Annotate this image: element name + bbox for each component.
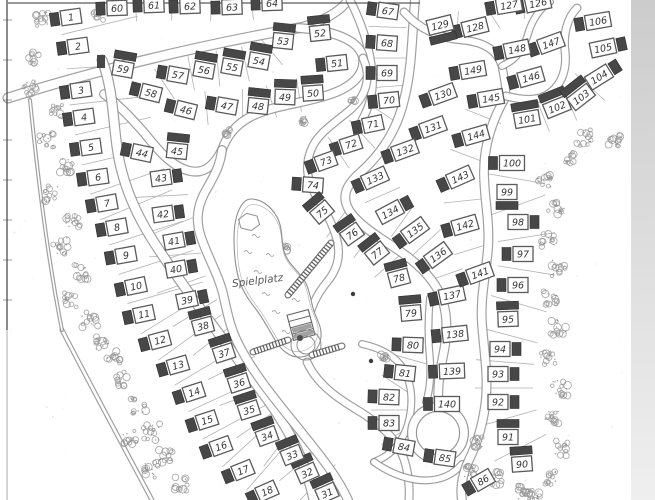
tree-dot	[89, 319, 90, 320]
parcel-boundary-line	[369, 26, 407, 27]
tree-dot	[102, 345, 103, 346]
tree-dot	[305, 116, 306, 117]
lot-marker: 8	[95, 218, 128, 238]
building-footprint	[423, 449, 434, 463]
building-footprint	[366, 35, 376, 49]
lot-number: 62	[184, 1, 196, 12]
building-footprint	[392, 338, 401, 351]
building-footprint	[367, 95, 377, 109]
lot-marker: 38	[188, 306, 216, 336]
lot-number: 91	[502, 433, 514, 444]
lot-number: 90	[516, 459, 529, 471]
lot-marker: 64	[251, 0, 283, 11]
tree-dot	[387, 355, 388, 356]
lot-marker: 59	[111, 50, 137, 78]
paper-speckle	[611, 425, 613, 427]
tree-dot	[548, 411, 549, 412]
building-footprint	[497, 420, 519, 428]
building-footprint	[510, 446, 533, 456]
tree-scribble	[546, 184, 550, 188]
tree-dot	[65, 253, 66, 254]
lot-marker: 105	[589, 36, 627, 58]
tree-dot	[468, 475, 469, 476]
tree-dot	[107, 357, 108, 358]
building-footprint	[574, 17, 585, 31]
tree-dot	[546, 417, 547, 418]
lot-number: 98	[512, 218, 524, 229]
paper-speckle	[619, 342, 620, 343]
paper-speckle	[584, 152, 586, 154]
tree-scribble	[565, 440, 570, 445]
tree-dot	[153, 474, 154, 475]
tree-dot	[185, 479, 186, 480]
lot-marker: 148	[492, 39, 530, 61]
subdivision-map: 1234567891011121314151617183132333435363…	[0, 0, 655, 500]
tree-dot	[537, 495, 538, 496]
tree-scribble	[79, 324, 86, 331]
tree-dot	[563, 208, 564, 209]
paper-speckle	[101, 142, 102, 143]
building-footprint	[129, 82, 141, 97]
lot-number: 43	[154, 173, 168, 186]
building-footprint	[211, 1, 220, 14]
tree-dot	[50, 132, 51, 133]
lot-marker: 45	[165, 132, 189, 159]
tree-dot	[49, 200, 50, 201]
tree-scribble	[47, 186, 53, 192]
tree-dot	[83, 267, 84, 268]
paper-speckle	[94, 257, 96, 259]
tree-scribble	[548, 317, 555, 324]
lot-marker: 60	[96, 0, 128, 16]
building-footprint	[496, 301, 518, 310]
tree-dot	[521, 487, 522, 488]
paper-speckle	[13, 231, 15, 233]
lot-marker: 50	[301, 75, 325, 101]
tree-scribble	[52, 104, 55, 107]
tree-dot	[548, 293, 549, 294]
tree-dot	[93, 325, 94, 326]
lot-marker: 96	[497, 278, 528, 293]
paper-speckle	[52, 416, 54, 418]
tree-dot	[155, 439, 156, 440]
tree-dot	[60, 108, 61, 109]
building-footprint	[497, 279, 506, 292]
tree-scribble	[33, 12, 39, 18]
lot-marker: 11	[122, 305, 155, 326]
lot-marker: 7	[85, 194, 118, 214]
paper-speckle	[366, 300, 367, 301]
lot-marker: 106	[574, 11, 612, 32]
tree-dot	[34, 81, 35, 82]
tree-scribble	[172, 474, 179, 481]
lot-number: 140	[438, 400, 456, 411]
lot-marker: 83	[368, 416, 399, 431]
tree-scribble	[78, 264, 84, 270]
paper-speckle	[263, 176, 264, 177]
building-footprint	[49, 12, 60, 26]
tree-dot	[555, 472, 556, 473]
tree-dot	[56, 106, 57, 107]
building-footprint	[424, 398, 433, 411]
paper-speckle	[544, 163, 546, 165]
lot-number: 93	[492, 370, 504, 381]
lot-number: 138	[446, 329, 465, 342]
tree-dot	[464, 476, 465, 477]
tree-scribble	[56, 169, 63, 176]
lot-number: 50	[307, 88, 320, 100]
tree-scribble	[36, 24, 39, 27]
junction-block	[97, 55, 105, 68]
tree-scribble	[552, 469, 558, 475]
building-footprint	[104, 251, 115, 265]
building-footprint	[399, 295, 422, 305]
lot-marker: 104	[584, 58, 622, 90]
parcel-boundary-line	[444, 199, 482, 203]
lot-marker: 14	[172, 382, 206, 406]
lot-marker: 147	[526, 32, 565, 58]
tree-dot	[107, 343, 108, 344]
lot-number: 48	[251, 101, 264, 113]
building-footprint	[167, 132, 190, 142]
tree-dot	[553, 381, 554, 382]
lot-number: 51	[331, 58, 344, 70]
tree-dot	[143, 429, 144, 430]
lot-number: 53	[276, 36, 289, 48]
tree-dot	[565, 331, 566, 332]
paper-speckle	[140, 109, 142, 111]
paper-speckle	[235, 185, 236, 186]
building-footprint	[59, 85, 70, 99]
tree-dot	[585, 130, 586, 131]
tree-dot	[57, 253, 58, 254]
paper-speckle	[584, 46, 586, 48]
paper-speckle	[366, 380, 368, 382]
lot-number: 67	[381, 6, 395, 19]
lot-marker: 6	[76, 168, 109, 187]
lot-marker: 56	[192, 51, 218, 79]
lot-marker: 136	[415, 242, 453, 275]
building-footprint	[172, 169, 183, 183]
paper-speckle	[160, 190, 162, 192]
tree-dot	[138, 410, 139, 411]
lot-marker: 52	[307, 14, 331, 41]
tree-scribble	[144, 422, 151, 429]
building-footprint	[85, 199, 96, 213]
lot-marker: 74	[292, 176, 324, 193]
lot-marker: 80	[392, 337, 424, 353]
lot-marker: 62	[169, 0, 201, 14]
tree-dot	[385, 358, 386, 359]
tree-dot	[46, 22, 47, 23]
lot-marker: 12	[138, 330, 172, 353]
paper-speckle	[620, 96, 621, 97]
tree-dot	[158, 427, 159, 428]
tree-dot	[50, 137, 51, 138]
building-footprint	[138, 337, 150, 352]
tree-dot	[550, 186, 551, 187]
paper-speckle	[63, 453, 65, 455]
tree-scribble	[101, 18, 106, 23]
tree-dot	[158, 439, 159, 440]
tree-dot	[609, 139, 610, 140]
tree-dot	[466, 466, 467, 467]
tree-dot	[68, 226, 69, 227]
lot-marker: 41	[163, 230, 196, 250]
tree-dot	[41, 142, 42, 143]
building-footprint	[114, 282, 126, 297]
tree-dot	[85, 267, 86, 268]
tree-dot	[32, 94, 33, 95]
tree-dot	[554, 381, 555, 382]
lot-marker: 9	[104, 246, 137, 266]
building-footprint	[122, 310, 134, 325]
lot-marker: 143	[435, 165, 474, 193]
lot-marker: 4	[62, 108, 95, 127]
building-footprint	[496, 202, 518, 210]
ring-structure-dot	[297, 335, 303, 341]
lot-marker: 146	[506, 66, 545, 90]
lot-number: 139	[443, 366, 462, 378]
paper-speckle	[215, 191, 217, 193]
tree-dot	[584, 132, 585, 133]
paper-speckle	[261, 181, 262, 182]
building-footprint	[205, 96, 216, 110]
tree-dot	[124, 441, 125, 442]
tree-dot	[121, 378, 122, 379]
tree-dot	[620, 142, 621, 143]
lot-marker: 47	[205, 95, 238, 115]
parcel-boundary-line	[498, 266, 555, 275]
building-footprint	[292, 177, 302, 191]
tree-dot	[532, 498, 533, 499]
tree-dot	[557, 411, 558, 412]
tree-scribble	[74, 305, 78, 309]
lot-marker: 139	[428, 363, 465, 379]
lot-number: 99	[501, 188, 513, 199]
lot-number: 94	[494, 345, 506, 356]
tree-dot	[79, 223, 80, 224]
ink-blot	[351, 292, 355, 296]
paper-speckle	[576, 276, 578, 278]
paper-speckle	[369, 351, 371, 353]
tree-scribble	[69, 302, 74, 307]
tree-dot	[104, 337, 105, 338]
tree-scribble	[554, 411, 557, 414]
tree-dot	[152, 425, 153, 426]
building-footprint	[156, 65, 167, 79]
tree-dot	[552, 260, 553, 261]
tree-scribble	[574, 140, 580, 146]
tree-dot	[123, 386, 124, 387]
building-footprint	[301, 75, 324, 85]
tree-dot	[557, 380, 558, 381]
lot-number: 81	[398, 368, 411, 380]
tree-dot	[543, 179, 544, 180]
lot-number: 100	[503, 159, 521, 170]
tree-dot	[560, 447, 561, 448]
paper-speckle	[525, 479, 527, 481]
lot-marker: 48	[246, 87, 270, 114]
building-footprint	[76, 172, 87, 186]
tree-dot	[40, 138, 41, 139]
tree-dot	[540, 357, 541, 358]
paper-speckle	[272, 71, 274, 73]
tree-dot	[171, 460, 172, 461]
tree-dot	[74, 214, 75, 215]
lot-number: 84	[397, 442, 411, 455]
paper-speckle	[521, 340, 523, 342]
lot-marker: 1	[49, 8, 82, 27]
paper-speckle	[250, 421, 251, 422]
tree-dot	[545, 483, 546, 484]
paper-speckle	[355, 60, 357, 62]
lot-number: 59	[116, 64, 130, 77]
tree-dot	[91, 323, 92, 324]
lot-marker: 69	[366, 66, 397, 81]
tree-scribble	[562, 323, 570, 331]
tree-scribble	[37, 133, 42, 138]
tree-dot	[47, 23, 48, 24]
lot-marker: 90	[510, 446, 534, 472]
paper-speckle	[56, 142, 57, 143]
lot-marker: 55	[220, 48, 246, 76]
paper-speckle	[268, 376, 270, 378]
lot-marker: 10	[114, 277, 147, 298]
paper-speckle	[36, 115, 37, 116]
paper-speckle	[186, 350, 188, 352]
building-footprint	[156, 362, 168, 377]
tree-dot	[76, 273, 77, 274]
paper-speckle	[57, 68, 59, 70]
tree-dot	[556, 295, 557, 296]
tree-dot	[287, 247, 288, 248]
tree-scribble	[564, 381, 572, 389]
tree-dot	[477, 438, 478, 439]
tree-dot	[68, 172, 69, 173]
lot-marker: 2	[56, 37, 89, 56]
lot-number: 69	[381, 69, 393, 80]
building-footprint	[95, 223, 106, 237]
tree-dot	[536, 492, 537, 493]
paper-speckle	[556, 440, 558, 442]
lot-number: 52	[314, 28, 327, 40]
paper-speckle	[572, 130, 574, 132]
lot-marker: 100	[489, 156, 525, 171]
paper-speckle	[65, 393, 66, 394]
lot-number: 95	[502, 314, 514, 325]
lot-marker: 134	[375, 194, 414, 224]
building-footprint	[185, 418, 198, 433]
lot-marker: 61	[133, 0, 165, 13]
tree-dot	[555, 453, 556, 454]
lot-marker: 18	[245, 480, 279, 500]
tree-dot	[544, 243, 545, 244]
lot-marker: 15	[185, 410, 219, 434]
tree-dot	[66, 237, 67, 238]
building-footprint	[185, 231, 196, 245]
lot-number: 96	[512, 281, 524, 292]
lot-marker: 68	[366, 34, 398, 51]
tree-dot	[172, 450, 173, 451]
tree-dot	[564, 266, 565, 267]
paper-speckle	[338, 422, 340, 424]
lot-marker: 95	[496, 301, 519, 327]
tree-dot	[126, 433, 127, 434]
tree-dot	[68, 297, 69, 298]
paper-speckle	[316, 12, 317, 13]
tree-dot	[554, 359, 555, 360]
building-footprint	[174, 205, 185, 219]
lot-number: 42	[156, 209, 170, 222]
tree-dot	[230, 133, 231, 134]
parcel-boundary-line	[136, 195, 188, 198]
lot-marker: 97	[502, 247, 533, 262]
lot-number: 57	[171, 70, 185, 83]
lot-number: 97	[517, 250, 529, 261]
building-footprint	[489, 157, 498, 170]
lot-marker: 79	[399, 295, 423, 322]
building-footprint	[368, 390, 377, 403]
paper-speckle	[596, 117, 597, 118]
tree-scribble	[30, 51, 35, 56]
tree-dot	[555, 480, 556, 481]
tree-dot	[28, 88, 29, 89]
paper-speckle	[333, 378, 335, 380]
building-footprint	[366, 67, 375, 80]
lot-marker: 51	[315, 54, 347, 72]
tree-dot	[66, 244, 67, 245]
tree-scribble	[37, 140, 41, 144]
lot-marker: 82	[368, 389, 400, 405]
lot-marker: 5	[69, 138, 102, 157]
paper-speckle	[507, 488, 508, 489]
tree-scribble	[550, 384, 554, 388]
paper-speckle	[527, 389, 528, 390]
paper-speckle	[60, 142, 61, 143]
paper-speckle	[425, 465, 426, 466]
lot-number: 45	[170, 146, 183, 158]
building-footprint	[449, 66, 460, 80]
tree-dot	[182, 486, 183, 487]
tree-dot	[46, 12, 47, 13]
paper-speckle	[10, 329, 11, 330]
lot-marker: 57	[156, 64, 189, 84]
building-footprint	[441, 223, 453, 238]
lot-number: 64	[266, 0, 278, 10]
building-footprint	[172, 390, 185, 405]
lot-number: 41	[167, 236, 181, 249]
building-footprint	[164, 99, 176, 114]
tree-dot	[42, 15, 43, 16]
building-footprint	[251, 0, 260, 10]
tree-dot	[381, 359, 382, 360]
lot-number: 61	[148, 0, 160, 11]
tree-scribble	[553, 362, 557, 366]
paper-speckle	[32, 277, 34, 279]
lot-marker: 140	[424, 397, 460, 412]
building-footprint	[133, 0, 142, 12]
tree-dot	[226, 133, 227, 134]
lot-marker: 71	[351, 115, 384, 136]
tree-scribble	[157, 421, 163, 427]
tree-scribble	[60, 104, 63, 107]
tree-dot	[67, 159, 68, 160]
tree-scribble	[116, 357, 122, 363]
tree-scribble	[96, 345, 101, 350]
lot-marker: 130	[418, 83, 457, 109]
tree-dot	[85, 278, 86, 279]
